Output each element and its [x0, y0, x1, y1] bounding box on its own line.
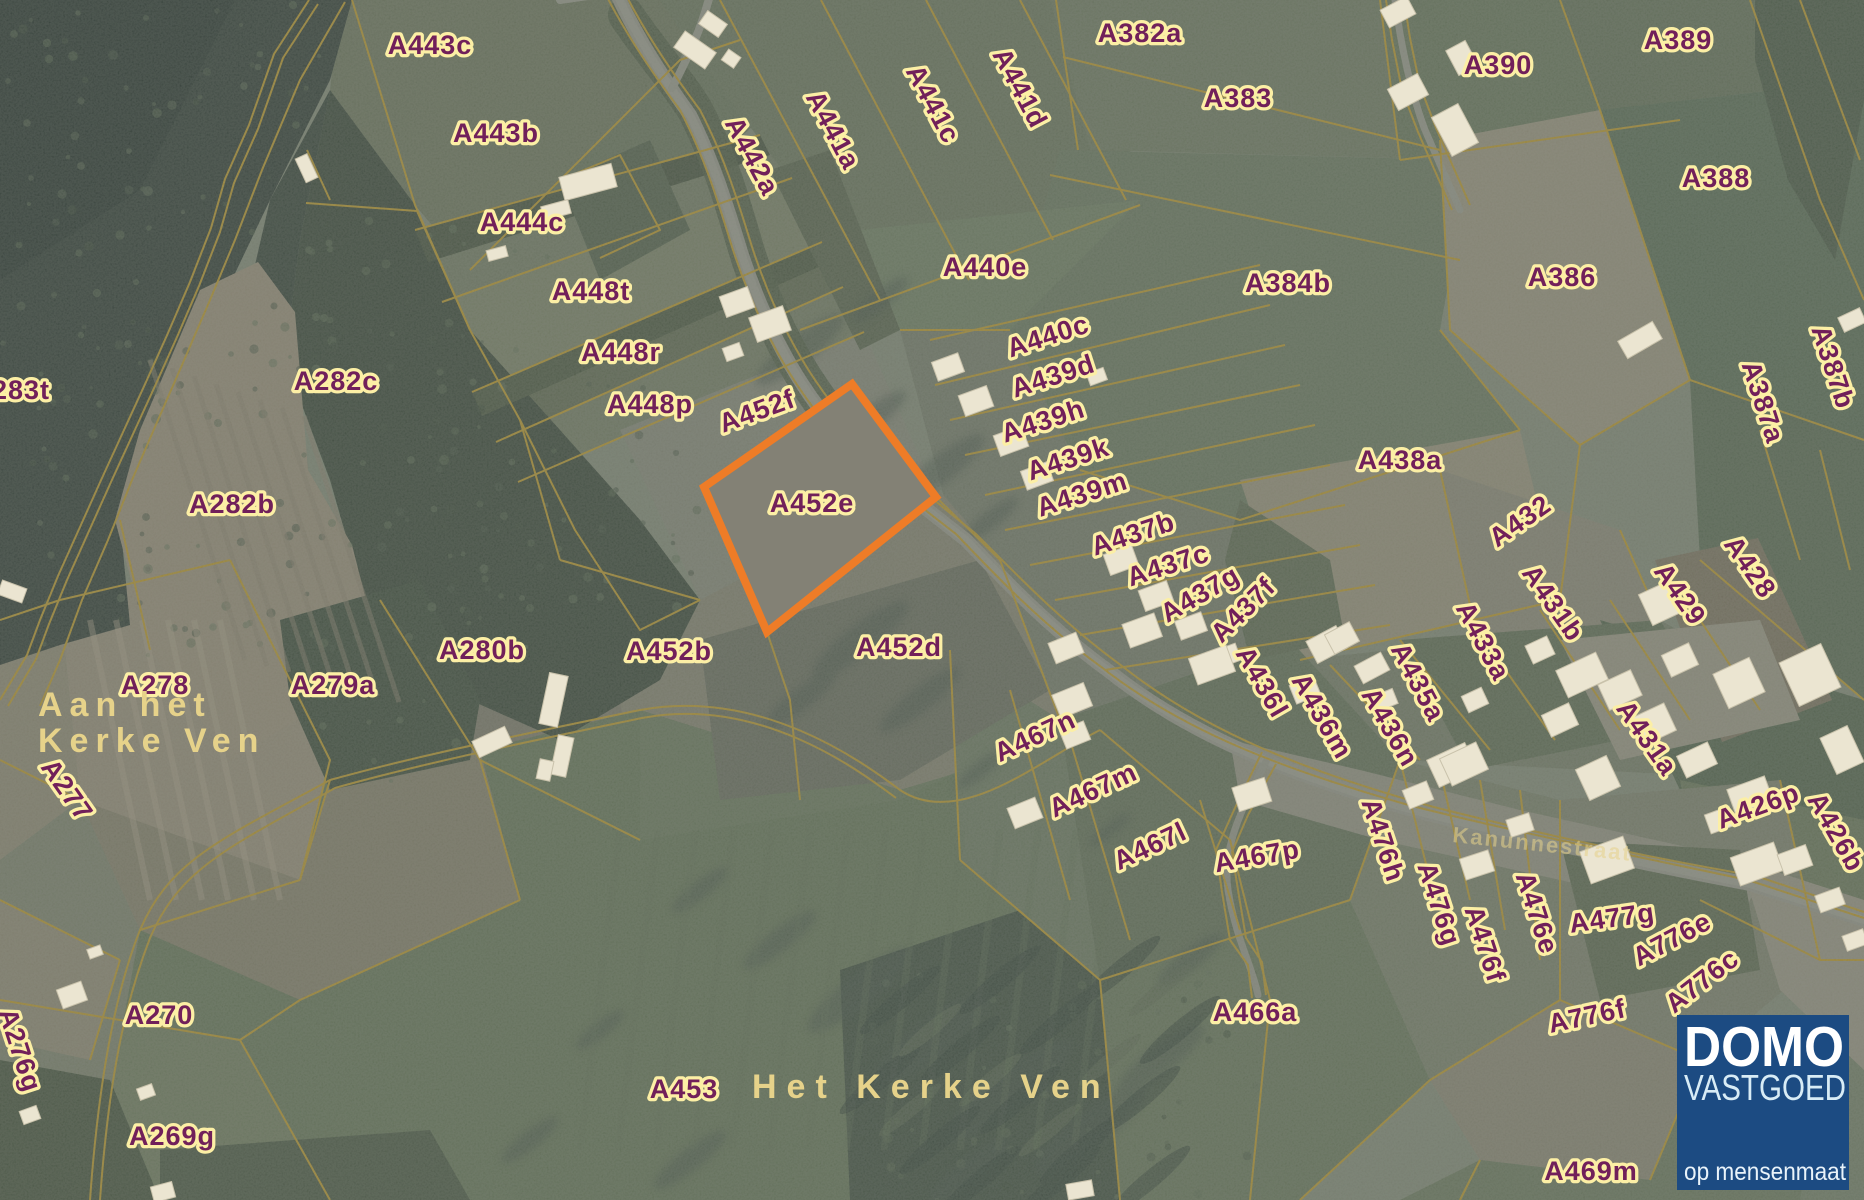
svg-text:A440e: A440e — [943, 252, 1028, 282]
svg-text:A453: A453 — [650, 1074, 719, 1104]
svg-text:A469m: A469m — [1544, 1156, 1638, 1186]
svg-text:A452b: A452b — [626, 636, 712, 666]
svg-text:A282c: A282c — [294, 366, 379, 396]
svg-text:Aan het: Aan het — [38, 686, 212, 724]
svg-text:A382a: A382a — [1098, 18, 1183, 48]
svg-text:A466a: A466a — [1213, 997, 1298, 1027]
svg-text:A390: A390 — [1464, 50, 1533, 80]
svg-text:A280b: A280b — [439, 635, 525, 665]
svg-text:A269g: A269g — [129, 1121, 215, 1151]
svg-text:VASTGOED: VASTGOED — [1684, 1067, 1846, 1108]
svg-text:A452d: A452d — [856, 632, 942, 662]
svg-text:Het Kerke Ven: Het Kerke Ven — [752, 1068, 1111, 1106]
svg-text:A452e: A452e — [770, 488, 855, 518]
svg-text:A443b: A443b — [453, 118, 539, 148]
svg-text:Kerke Ven: Kerke Ven — [38, 722, 265, 760]
svg-text:A389: A389 — [1644, 25, 1713, 55]
svg-text:A444c: A444c — [480, 207, 565, 237]
svg-text:A270: A270 — [125, 1000, 194, 1030]
svg-text:op mensenmaat: op mensenmaat — [1684, 1158, 1846, 1186]
svg-text:A384b: A384b — [1245, 268, 1331, 298]
svg-text:A282b: A282b — [189, 489, 275, 519]
svg-text:A388: A388 — [1682, 163, 1751, 193]
svg-text:A448p: A448p — [607, 389, 693, 419]
svg-text:A448r: A448r — [581, 337, 661, 367]
svg-text:A448t: A448t — [552, 276, 631, 306]
svg-text:A443c: A443c — [388, 30, 473, 60]
svg-text:A438a: A438a — [1358, 445, 1443, 475]
svg-text:A386: A386 — [1528, 262, 1597, 292]
svg-text:283t: 283t — [0, 375, 50, 405]
svg-text:A279a: A279a — [291, 670, 376, 700]
svg-text:A383: A383 — [1204, 83, 1273, 113]
